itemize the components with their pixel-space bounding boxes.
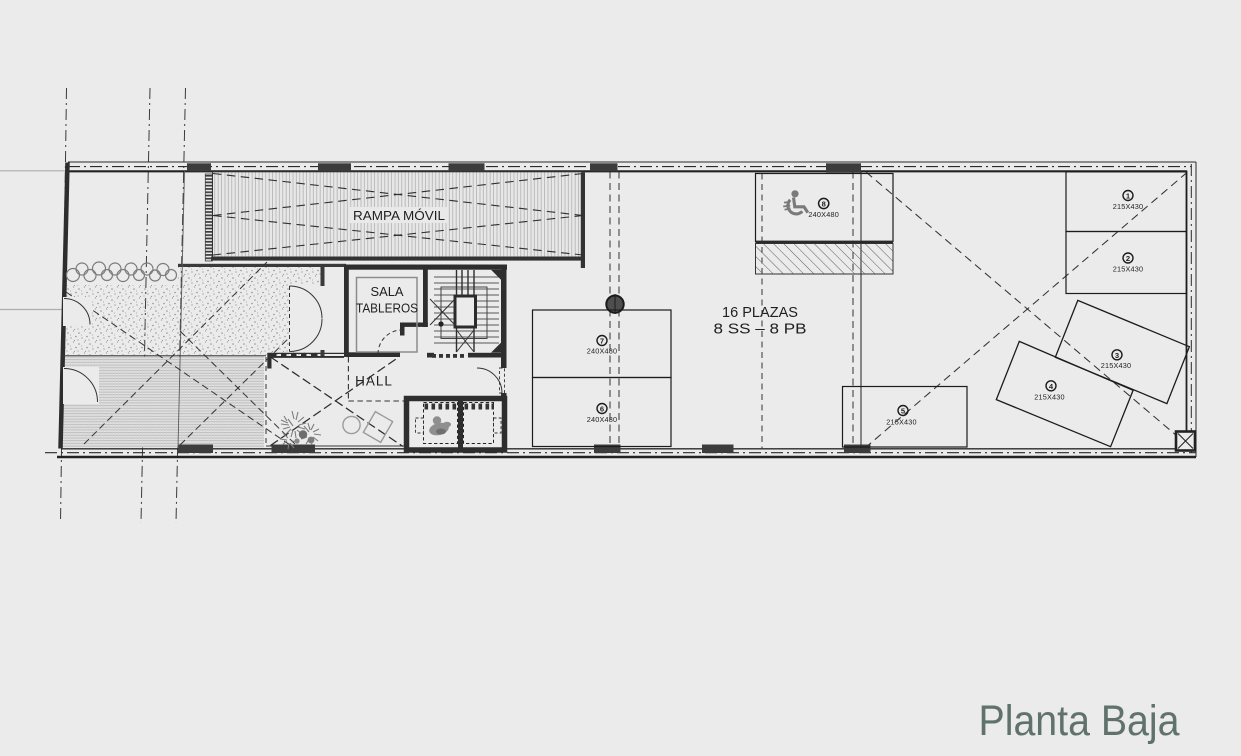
svg-text:2: 2 (1126, 254, 1130, 263)
svg-text:215X430: 215X430 (1034, 393, 1065, 402)
svg-text:7: 7 (600, 337, 604, 346)
svg-text:8 SS – 8 PB: 8 SS – 8 PB (714, 322, 807, 338)
svg-text:240X480: 240X480 (808, 210, 839, 219)
svg-text:SALA: SALA (371, 284, 404, 299)
svg-text:240X480: 240X480 (587, 347, 618, 356)
svg-text:215X430: 215X430 (1113, 202, 1144, 211)
svg-text:Planta Baja: Planta Baja (979, 698, 1180, 745)
svg-text:TABLEROS: TABLEROS (356, 301, 418, 316)
svg-text:HALL: HALL (355, 374, 393, 389)
svg-text:3: 3 (1115, 351, 1119, 360)
svg-text:240X480: 240X480 (587, 415, 618, 424)
svg-text:6: 6 (600, 405, 604, 414)
svg-text:RAMPA MÓVIL: RAMPA MÓVIL (353, 208, 445, 223)
svg-text:215X430: 215X430 (1113, 265, 1144, 274)
svg-text:8: 8 (822, 200, 826, 209)
svg-text:16 PLAZAS: 16 PLAZAS (722, 305, 798, 321)
svg-text:215X430: 215X430 (1101, 361, 1132, 370)
svg-text:215X430: 215X430 (886, 418, 917, 427)
